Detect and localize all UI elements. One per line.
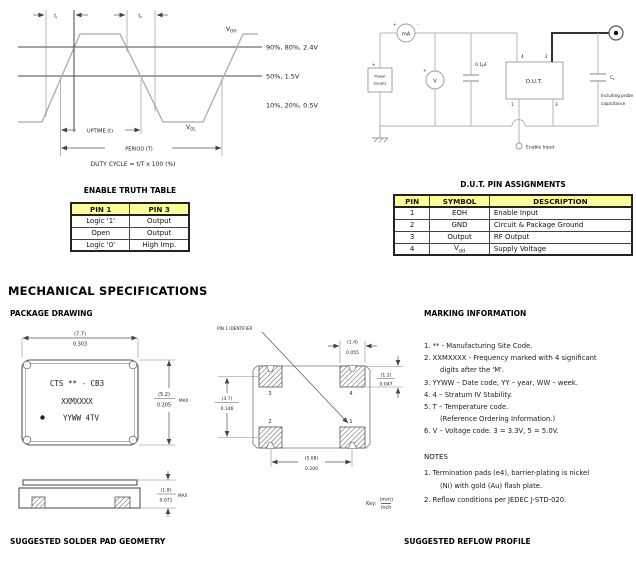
voh-label: VOH: [226, 26, 237, 34]
tr-label: tr: [54, 14, 58, 20]
cell-symbol: Output: [430, 231, 490, 243]
side-height-inch: 0.071: [160, 498, 173, 504]
level-label-10: 10%, 20%, 0.5V: [266, 102, 318, 110]
width-dim-inch: 0.303: [73, 342, 87, 348]
termination-pad: [115, 497, 130, 508]
table-row: Open Output: [71, 227, 189, 239]
marking-information-list: 1. ** - Manufacturing Site Code. 2. XXMX…: [424, 340, 632, 438]
vol-label: VOL: [186, 124, 196, 132]
uptime-label: UPTIME (t): [87, 129, 113, 135]
pad-height-inch: 0.047: [380, 382, 393, 388]
header-symbol: SYMBOL: [430, 195, 490, 207]
ammeter-plus-sign: +: [393, 22, 397, 27]
ammeter-label: mA: [402, 32, 411, 38]
table-row: 2 GND Circuit & Package Ground: [394, 219, 632, 231]
units-key: Key: (mm) inch: [366, 497, 393, 511]
ground-symbol: [372, 126, 388, 142]
load-cap-label: CL: [610, 75, 616, 81]
table-row: Logic '1' Output: [71, 215, 189, 227]
table-row: 4 Vdd Supply Voltage: [394, 243, 632, 255]
dut-pin1-label: 1: [511, 102, 514, 107]
pin1-dot: [40, 415, 44, 419]
cell: Open: [71, 227, 130, 239]
scope-connector-pin: [614, 31, 618, 35]
table-header-row: PIN 1 PIN 3: [71, 203, 189, 215]
cell-symbol: EOH: [430, 207, 490, 219]
pad-width-mm: (1.4): [347, 340, 358, 346]
dut-pin-table-section: D.U.T. PIN ASSIGNMENTS PIN SYMBOL DESCRI…: [393, 180, 633, 256]
enable-truth-table-title: ENABLE TRUTH TABLE: [70, 186, 190, 195]
header-description: DESCRIPTION: [489, 195, 632, 207]
vertical-pitch-inch: 0.146: [221, 406, 234, 412]
pin1-identifier-label: PIN 1 IDENTIFIER: [217, 326, 253, 331]
marking-line-1: CTS ** - CB3: [50, 379, 104, 388]
enable-terminal: [516, 143, 522, 149]
mechanical-specs-heading: MECHANICAL SPECIFICATIONS: [8, 284, 208, 298]
horizontal-pitch-inch: 0.200: [305, 466, 318, 472]
marking-item: 5. T – Temperature code.: [424, 401, 632, 413]
corner-castellation: [129, 361, 137, 369]
cell-desc: Circuit & Package Ground: [489, 219, 632, 231]
marking-item: 1. ** - Manufacturing Site Code.: [424, 340, 632, 352]
note-item-wrap: (Ni) with gold (Au) flash plate.: [424, 480, 632, 493]
marking-item: 3. YYWW – Date code, YY – year, WW – wee…: [424, 377, 632, 389]
corner-castellation: [129, 436, 137, 444]
header-pin3: PIN 3: [130, 203, 189, 215]
solder-pad-caption: SUGGESTED SOLDER PAD GEOMETRY: [10, 537, 165, 546]
pad-1-number: 1: [349, 419, 352, 425]
cell-pin: 1: [394, 207, 430, 219]
cell-pin: 4: [394, 243, 430, 255]
power-supply-label-2: Supply: [374, 81, 388, 86]
dut-pin-table: PIN SYMBOL DESCRIPTION 1 EOH Enable Inpu…: [393, 194, 633, 256]
corner-castellation: [23, 436, 31, 444]
marking-line-2: XXMXXXX: [61, 397, 93, 406]
power-plus-sign: +: [372, 62, 376, 67]
units-key-fraction: (mm) inch: [379, 497, 393, 511]
cell-symbol: Vdd: [430, 243, 490, 255]
notes-list: 1. Termination pads (e4), barrier-platin…: [424, 467, 632, 507]
max-label: MAX: [178, 493, 187, 498]
power-supply-label-1: Power: [374, 74, 386, 79]
datasheet-page: tr tf 90%, 80%, 2.4V 50%, 1.5V 10%, 20%,…: [0, 0, 636, 563]
marking-item: 2. XXMXXXX - Frequency marked with 4 sig…: [424, 352, 632, 364]
level-label-90: 90%, 80%, 2.4V: [266, 44, 318, 52]
notes-section: NOTES 1. Termination pads (e4), barrier-…: [424, 453, 632, 507]
cell: High Imp.: [130, 239, 189, 251]
package-drawing-label: PACKAGE DRAWING: [10, 309, 93, 318]
rf-output-wire: [552, 33, 609, 62]
reflow-profile-caption: SUGGESTED REFLOW PROFILE: [404, 537, 531, 546]
marking-item: 6. V – Voltage code. 3 = 3.3V, 5 = 5.0V.: [424, 425, 632, 437]
header-pin1: PIN 1: [71, 203, 130, 215]
bypass-cap-label: 0.1µF: [475, 62, 488, 68]
horizontal-pitch-mm: (5.08): [305, 456, 319, 462]
cell-pin: 2: [394, 219, 430, 231]
period-label: PERIOD (T): [125, 147, 153, 153]
level-label-50: 50%, 1.5V: [266, 73, 300, 81]
dut-pin3-label: 3: [555, 102, 558, 107]
lid: [23, 480, 137, 485]
package-top-view: (7.7) 0.303 CTS ** - CB3 XXMXXXX YYWW 4T…: [8, 322, 208, 457]
marking-item: 4. 4 – Stratum IV Stability.: [424, 389, 632, 401]
tf-label: tf: [138, 14, 142, 20]
table-header-row: PIN SYMBOL DESCRIPTION: [394, 195, 632, 207]
dut-label: D.U.T.: [526, 79, 542, 85]
probe-note-line2: capacitance: [601, 101, 626, 106]
duty-cycle-label: DUTY CYCLE = t/T x 100 (%): [91, 161, 176, 168]
timing-diagram: tr tf 90%, 80%, 2.4V 50%, 1.5V 10%, 20%,…: [0, 0, 360, 178]
pad-4-number: 4: [349, 391, 352, 397]
land-pattern-drawing: PIN 1 IDENTIFIER 3 4 2 1 (1.4) 0.055 (1.…: [210, 315, 410, 480]
cell-desc: Enable Input: [489, 207, 632, 219]
vertical-pitch-mm: (3.7): [222, 396, 233, 402]
max-label: MAX: [179, 398, 188, 403]
marking-item-wrap: digits after the 'M'.: [424, 364, 632, 376]
pad-height-mm: (1.2): [381, 373, 392, 379]
units-key-label: Key:: [366, 501, 376, 507]
height-dim-inch: 0.205: [157, 403, 171, 409]
units-key-inch: inch: [381, 503, 391, 511]
table-row: 1 EOH Enable Input: [394, 207, 632, 219]
marking-item-wrap: (Reference Ordering Information.): [424, 413, 632, 425]
dut-pin2-label: 2: [545, 54, 548, 59]
pad-2-number: 2: [268, 419, 271, 425]
voltmeter-label: V: [433, 79, 437, 85]
side-height-mm: (1.8): [161, 488, 172, 494]
corner-castellation: [23, 361, 31, 369]
header-pin: PIN: [394, 195, 430, 207]
marking-information-title: MARKING INFORMATION: [424, 309, 632, 318]
cell-symbol: GND: [430, 219, 490, 231]
marking-information-section: MARKING INFORMATION 1. ** - Manufacturin…: [424, 309, 632, 438]
cell: Logic '0': [71, 239, 130, 251]
pad-3-number: 3: [268, 391, 271, 397]
width-dim-mm: (7.7): [74, 332, 86, 338]
cell: Output: [130, 215, 189, 227]
dut-pin4-label: 4: [521, 54, 524, 59]
test-circuit: Power Supply + mA + - V + 0.1µF D.U.T. 4…: [358, 0, 636, 178]
termination-pad: [32, 497, 45, 508]
marking-line-3: YYWW 4TV: [63, 414, 100, 423]
voltmeter-plus-sign: +: [423, 68, 427, 73]
cell-pin: 3: [394, 231, 430, 243]
enable-input-label: Enable Input: [526, 145, 555, 151]
table-row: 3 Output RF Output: [394, 231, 632, 243]
enable-truth-table-section: ENABLE TRUTH TABLE PIN 1 PIN 3 Logic '1'…: [70, 186, 190, 252]
cell: Logic '1': [71, 215, 130, 227]
probe-note-line1: Including probe: [601, 93, 634, 98]
height-dim-mm: (5.2): [158, 392, 170, 398]
cell-desc: Supply Voltage: [489, 243, 632, 255]
dut-pin-table-title: D.U.T. PIN ASSIGNMENTS: [393, 180, 633, 189]
note-item: 2. Reflow conditions per JEDEC J-STD-020…: [424, 494, 632, 507]
cell-desc: RF Output: [489, 231, 632, 243]
notes-title: NOTES: [424, 453, 632, 461]
pad-width-inch: 0.055: [346, 350, 359, 356]
ammeter-minus-sign: -: [417, 22, 419, 27]
note-item: 1. Termination pads (e4), barrier-platin…: [424, 467, 632, 480]
table-row: Logic '0' High Imp.: [71, 239, 189, 251]
cell: Output: [130, 227, 189, 239]
enable-truth-table: PIN 1 PIN 3 Logic '1' Output Open Output…: [70, 202, 190, 252]
package-side-view: (1.8) 0.071 MAX: [8, 470, 208, 545]
